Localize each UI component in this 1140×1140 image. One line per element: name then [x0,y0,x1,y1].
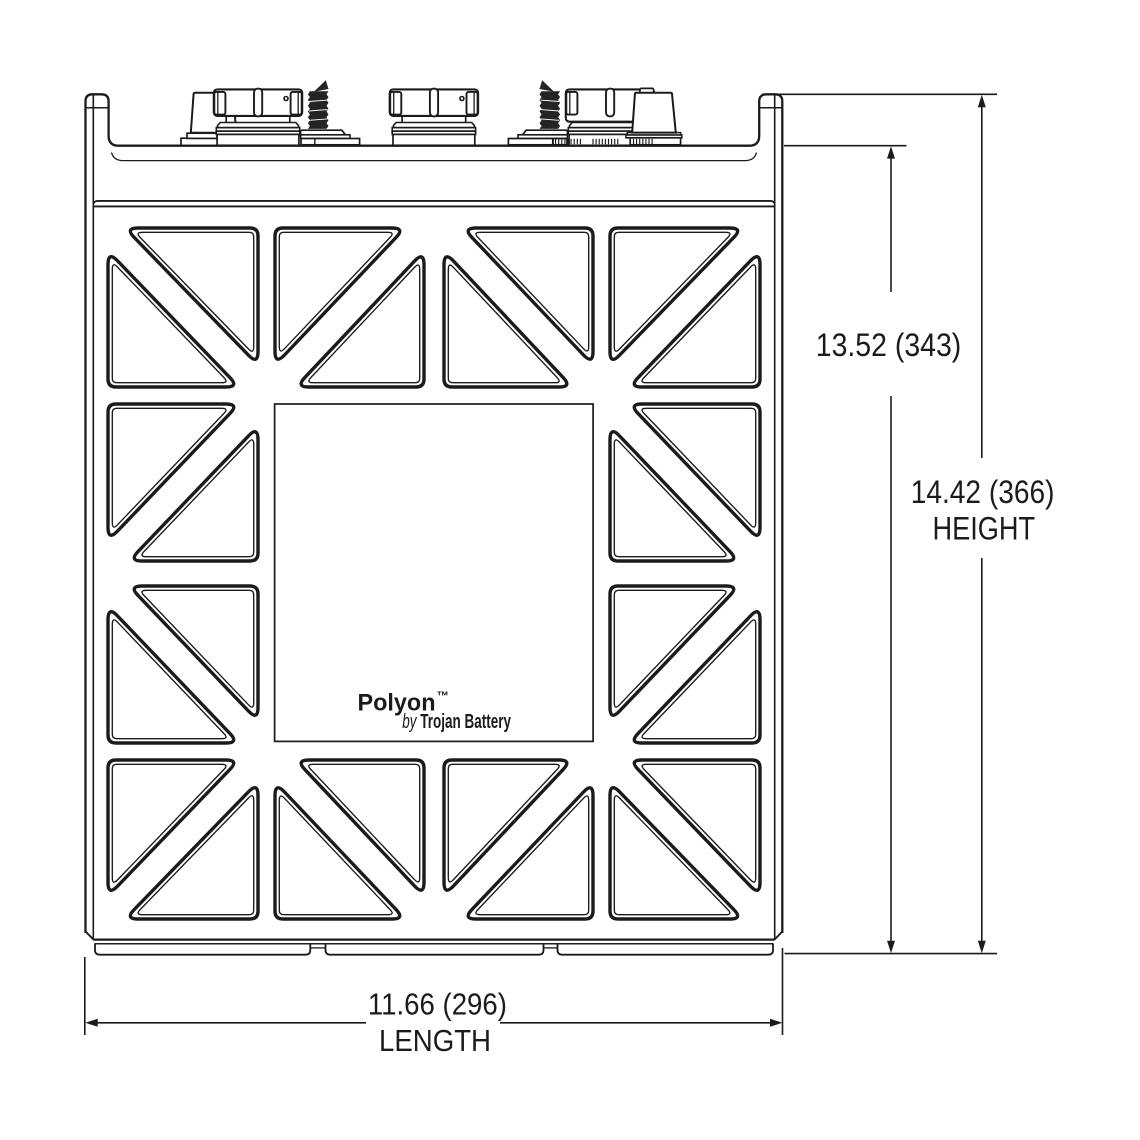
svg-text:13.52 (343): 13.52 (343) [816,327,962,363]
svg-text:HEIGHT: HEIGHT [933,510,1036,546]
svg-text:LENGTH: LENGTH [379,1024,491,1058]
svg-text:14.42 (366): 14.42 (366) [911,474,1055,510]
svg-text:by Trojan Battery: by Trojan Battery [402,711,511,733]
svg-text:11.66 (296): 11.66 (296) [368,988,507,1022]
svg-text:™: ™ [437,689,449,703]
